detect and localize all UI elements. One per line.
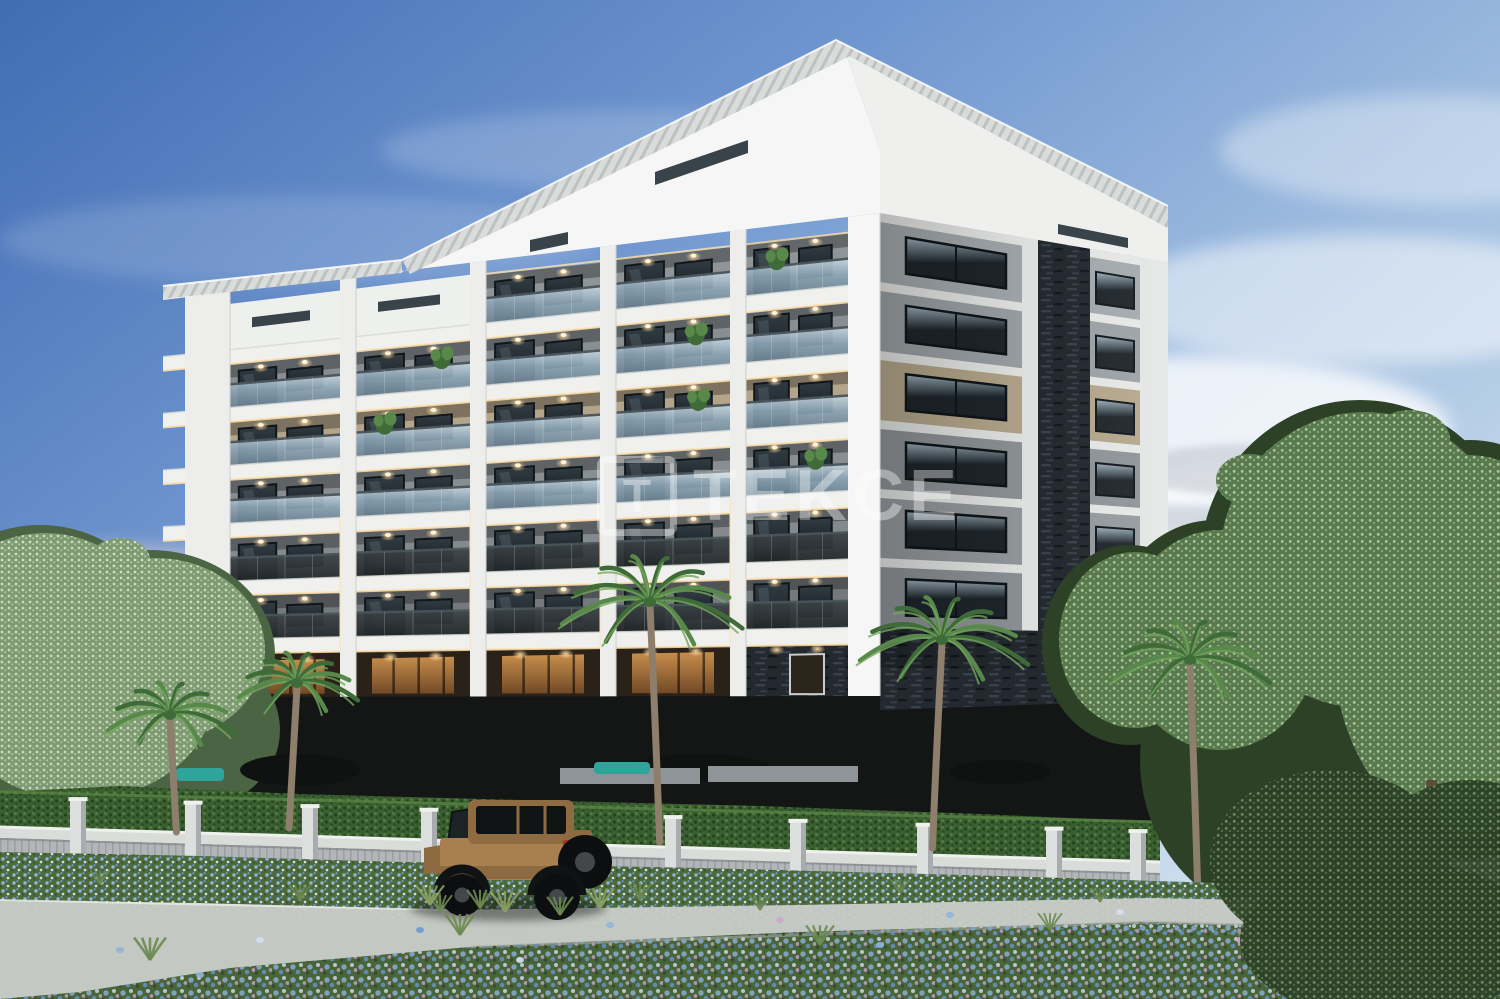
right-front-foliage (1210, 770, 1500, 999)
render-scene (0, 0, 1500, 999)
render-canvas: T TEKCE (0, 0, 1500, 999)
